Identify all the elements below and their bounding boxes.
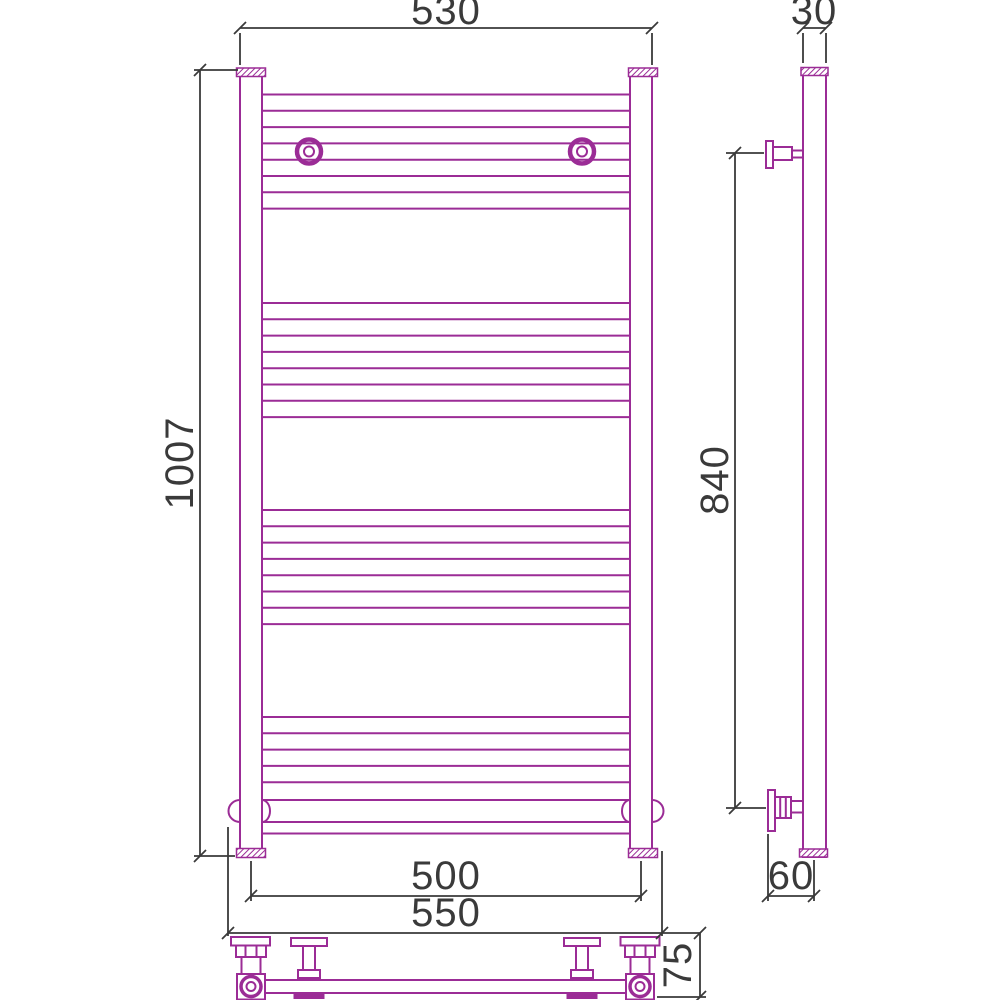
dim-1007: 1007 bbox=[158, 64, 238, 862]
bracket-pad bbox=[567, 994, 597, 999]
right-post-top-cap bbox=[629, 68, 658, 77]
rosette-inner-circle bbox=[304, 147, 314, 157]
valve-flange bbox=[621, 937, 660, 946]
side-post bbox=[803, 68, 826, 857]
dim-label-550: 550 bbox=[411, 891, 481, 935]
side-post-top-cap bbox=[801, 68, 828, 76]
bracket-stem bbox=[303, 946, 315, 972]
valve-hex-nut bbox=[775, 797, 791, 818]
bracket-wall-plate bbox=[766, 141, 773, 168]
bracket-foot bbox=[571, 970, 593, 978]
dim-label-75: 75 bbox=[656, 942, 700, 989]
valve-body bbox=[631, 957, 650, 974]
dim-label-840: 840 bbox=[693, 445, 737, 515]
bracket-plate bbox=[291, 938, 327, 946]
right-post-bottom-cap bbox=[629, 849, 658, 858]
side-view bbox=[766, 68, 828, 858]
rosette-inner-circle bbox=[577, 147, 587, 157]
drawing-canvas: 530 30 1007 840 bbox=[0, 0, 1000, 1000]
collector-left-inner-arc bbox=[262, 800, 270, 822]
right-valve bbox=[621, 937, 660, 1000]
dim-label-530: 530 bbox=[411, 0, 481, 33]
side-top-bracket bbox=[766, 141, 803, 168]
valve-body bbox=[242, 957, 261, 974]
left-valve bbox=[231, 937, 270, 1000]
bottom-connection-assembly bbox=[231, 937, 660, 1000]
left-post bbox=[240, 70, 262, 855]
left-wall-bracket bbox=[291, 938, 327, 999]
valve-hex-nut bbox=[236, 946, 266, 958]
bracket-plate bbox=[564, 938, 600, 946]
dim-label-60: 60 bbox=[768, 854, 815, 898]
bracket-stem bbox=[576, 946, 588, 972]
collector-right-inner-arc bbox=[622, 800, 630, 822]
technical-drawing: 530 30 1007 840 bbox=[0, 0, 1000, 1000]
rung-group-2 bbox=[262, 303, 630, 417]
rung-group-1 bbox=[262, 95, 630, 209]
dim-label-1007: 1007 bbox=[158, 417, 202, 510]
rung-group-4 bbox=[262, 717, 630, 782]
bottom-collector-tube bbox=[229, 800, 664, 834]
bracket-stem bbox=[792, 151, 803, 158]
bracket-foot bbox=[298, 970, 320, 978]
right-post bbox=[630, 70, 652, 855]
rung-group-3 bbox=[262, 510, 630, 624]
valve-stem bbox=[791, 801, 803, 813]
dim-75: 75 bbox=[656, 927, 706, 1000]
right-wall-bracket bbox=[564, 938, 600, 999]
valve-wall-plate bbox=[768, 790, 775, 831]
valve-flange bbox=[231, 937, 270, 946]
valve-hex-nut bbox=[625, 946, 655, 958]
dim-label-30: 30 bbox=[791, 0, 838, 33]
dim-840: 840 bbox=[693, 147, 766, 814]
dim-530: 530 bbox=[234, 0, 658, 65]
left-post-top-cap bbox=[237, 68, 266, 77]
collector-left-cap-arc bbox=[229, 800, 240, 822]
left-post-bottom-cap bbox=[237, 849, 266, 858]
bracket-pad bbox=[294, 994, 324, 999]
side-bottom-valve bbox=[768, 790, 803, 831]
dim-30: 30 bbox=[791, 0, 838, 63]
collector-right-cap-arc bbox=[652, 800, 664, 822]
bracket-body bbox=[773, 147, 792, 160]
